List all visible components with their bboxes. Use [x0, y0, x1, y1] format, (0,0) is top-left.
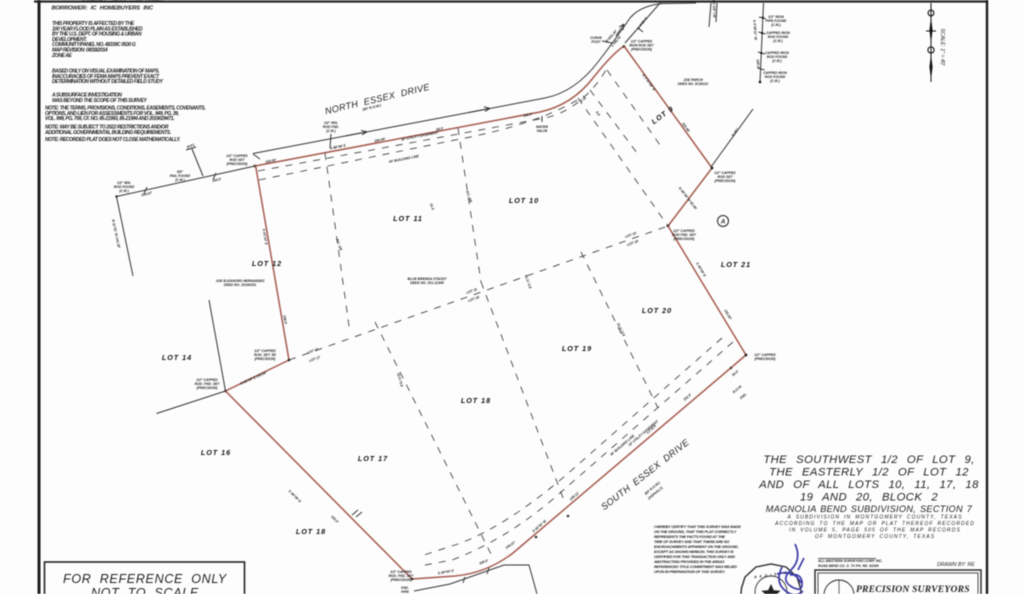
svg-text:(C.M.): (C.M.)	[770, 79, 780, 83]
svg-text:ADDITIONAL GOVERNMENTAL BUILDI: ADDITIONAL GOVERNMENTAL BUILDING REQUIRE…	[44, 130, 171, 136]
svg-text:SOUTH ESSEX DRIVE: SOUTH ESSEX DRIVE	[599, 437, 691, 512]
svg-text:144.07': 144.07'	[505, 540, 517, 550]
svg-text:206.67': 206.67'	[140, 191, 153, 198]
svg-text:152.5': 152.5'	[683, 393, 693, 402]
svg-text:51.5 / 5.8: 51.5 / 5.8	[524, 274, 533, 289]
svg-text:REFERENCED TITLE COMMITMENT WA: REFERENCED TITLE COMMITMENT WAS RELIED	[654, 565, 737, 569]
svg-text:BORROWER: IC HOMEBUYERS INC: BORROWER: IC HOMEBUYERS INC	[52, 5, 154, 11]
svg-text:LOT 17: LOT 17	[309, 355, 322, 363]
svg-text:DRAWN BY: RE: DRAWN BY: RE	[937, 562, 975, 568]
svg-text:VOL. 999, PG. 708, CF. NO. 85-: VOL. 999, PG. 708, CF. NO. 85-21993, 85-…	[45, 116, 174, 122]
svg-text:S 4°38'11" W: S 4°38'11" W	[752, 20, 757, 41]
svg-text:LOT 10: LOT 10	[509, 196, 539, 205]
svg-text:LOT 17: LOT 17	[358, 454, 388, 463]
svg-text:THE SOUTHWEST 1/2 OF LOT 9,: THE SOUTHWEST 1/2 OF LOT 9,	[763, 454, 974, 466]
svg-text:S 89°54' E: S 89°54' E	[438, 569, 455, 576]
svg-text:ZONE AE: ZONE AE	[51, 53, 72, 59]
svg-text:(PRECISION): (PRECISION)	[715, 179, 737, 183]
svg-text:ROAD BEND CO. S. TX PH. RD. 6/: ROAD BEND CO. S. TX PH. RD. 6/2/64	[818, 564, 879, 568]
svg-text:(PRECISION): (PRECISION)	[674, 237, 696, 241]
svg-text:ACCORDING TO THE MAP OR PLAT T: ACCORDING TO THE MAP OR PLAT THEREOF REC…	[774, 521, 975, 527]
svg-text:FOR REFERENCE ONLY: FOR REFERENCE ONLY	[63, 572, 228, 586]
svg-text:I HEREBY CERTIFY THAT THIS SUR: I HEREBY CERTIFY THAT THIS SURVEY WAS MA…	[654, 525, 741, 529]
svg-text:THE EASTERLY 1/2 OF LOT 12: THE EASTERLY 1/2 OF LOT 12	[769, 467, 969, 479]
svg-text:N 4°38' E: N 4°38' E	[636, 16, 648, 30]
svg-text:NOT TO SCALE: NOT TO SCALE	[91, 586, 199, 594]
svg-text:32.5 / 5.8: 32.5 / 5.8	[396, 372, 404, 387]
svg-text:UPON IN PREPARATION OF THIS SU: UPON IN PREPARATION OF THIS SURVEY.	[654, 570, 725, 574]
svg-text:LOT 21: LOT 21	[721, 260, 751, 269]
svg-text:A: A	[720, 220, 725, 226]
svg-text:(C.M.): (C.M.)	[175, 178, 185, 182]
svg-text:CERTIFIED FOR THIS TRANSACTION: CERTIFIED FOR THIS TRANSACTION ONLY AND	[654, 555, 735, 559]
svg-text:ALL-WESTERN SURVEYING CORP. IN: ALL-WESTERN SURVEYING CORP. INC.	[817, 559, 883, 563]
svg-text:FND 5/8" I.R.: FND 5/8" I.R.	[712, 0, 717, 18]
svg-text:(PRECISION): (PRECISION)	[755, 357, 777, 361]
svg-text:40' BUILDING LINE: 40' BUILDING LINE	[387, 154, 419, 164]
svg-text:50.0': 50.0'	[731, 369, 739, 377]
svg-text:LOT 12: LOT 12	[252, 259, 282, 268]
svg-text:16' UTILITY EASEMENT: 16' UTILITY EASEMENT	[401, 130, 440, 141]
svg-text:19 AND 20, BLOCK 2: 19 AND 20, BLOCK 2	[800, 492, 938, 504]
svg-text:(C.M.): (C.M.)	[326, 129, 336, 133]
svg-text:PIPE: PIPE	[401, 590, 409, 594]
svg-text:R.O.W.: R.O.W.	[732, 384, 743, 394]
svg-text:150.0': 150.0'	[479, 559, 489, 566]
svg-text:(PRECISION): (PRECISION)	[255, 357, 277, 361]
svg-text:TIME OF SURVEY AND THAT THERE: TIME OF SURVEY AND THAT THERE ARE NO	[654, 540, 729, 544]
svg-text:SCALE: 1" = 40': SCALE: 1" = 40'	[939, 28, 945, 66]
svg-text:WAS BEYOND THE SCOPE OF THIS S: WAS BEYOND THE SCOPE OF THIS SURVEY	[52, 98, 148, 104]
svg-text:VALVE: VALVE	[537, 129, 549, 133]
svg-text:DETERMINATION WITHOUT DETAILED: DETERMINATION WITHOUT DETAILED FIELD STU…	[52, 79, 164, 85]
svg-text:LOT 18: LOT 18	[296, 527, 326, 536]
svg-text:150.0': 150.0'	[212, 177, 222, 183]
svg-text:EXCEPT AS SHOWN HEREON. THIS S: EXCEPT AS SHOWN HEREON. THIS SURVEY IS	[654, 550, 734, 554]
svg-text:(PRECISION): (PRECISION)	[631, 48, 653, 52]
svg-text:IN VOLUME 5, PAGE 505 OF THE M: IN VOLUME 5, PAGE 505 OF THE MAP RECORDS	[789, 528, 961, 534]
svg-text:LOT 9: LOT 9	[650, 104, 676, 126]
svg-text:PRECISION SURVEYORS: PRECISION SURVEYORS	[856, 584, 970, 594]
svg-text:LOT 19: LOT 19	[562, 344, 592, 353]
svg-text:5.8: 5.8	[595, 110, 601, 116]
svg-text:(PRECISION): (PRECISION)	[227, 162, 249, 166]
svg-text:LOT 16: LOT 16	[201, 448, 231, 457]
svg-text:LOT 14: LOT 14	[162, 353, 192, 362]
svg-text:(C.M.): (C.M.)	[773, 39, 783, 43]
svg-text:180.1': 180.1'	[756, 59, 761, 69]
svg-text:(C.M.): (C.M.)	[771, 23, 781, 27]
svg-text:LOT 18: LOT 18	[468, 295, 480, 303]
svg-text:P.C. 5/8: P.C. 5/8	[335, 238, 343, 251]
svg-text:A SUBDIVISION IN MONTGOMERY CO: A SUBDIVISION IN MONTGOMERY COUNTY, TEXA…	[786, 515, 962, 521]
svg-text:LOT 20: LOT 20	[642, 306, 672, 315]
svg-text:S 44°09' E: S 44°09' E	[288, 489, 303, 504]
svg-text:POST: POST	[591, 40, 601, 44]
svg-text:LOT 12: LOT 12	[307, 347, 319, 355]
svg-text:150.0': 150.0'	[330, 515, 340, 525]
svg-text:OF MONTGOMERY COUNTY, TEXAS: OF MONTGOMERY COUNTY, TEXAS	[815, 534, 935, 540]
svg-text:160.0': 160.0'	[523, 112, 533, 118]
svg-text:C.B.: C.B.	[579, 96, 587, 103]
svg-text:(PRECISION): (PRECISION)	[197, 386, 219, 390]
svg-text:NORTH ESSEX DRIVE: NORTH ESSEX DRIVE	[324, 82, 431, 117]
svg-text:51.5 / 5.8: 51.5 / 5.8	[616, 322, 626, 337]
svg-text:REPRESENTS THE FACTS FOUND AT: REPRESENTS THE FACTS FOUND AT THE	[654, 535, 726, 539]
svg-text:SOMEWELL TEXAS 77346 HARRIS: SOMEWELL TEXAS 77346 HARRIS	[81, 0, 164, 4]
svg-text:NOTE: RECORDED PLAT DOES NOT C: NOTE: RECORDED PLAT DOES NOT CLOSE MATHE…	[45, 137, 181, 143]
svg-text:DEED NO. 8136121: DEED NO. 8136121	[678, 82, 709, 86]
svg-text:N 89°59' E 150.00': N 89°59' E 150.00'	[240, 370, 268, 385]
svg-text:(C.M.): (C.M.)	[772, 59, 782, 63]
svg-text:AND OF ALL LOTS 10, 11, 17, 18: AND OF ALL LOTS 10, 11, 17, 18	[758, 479, 979, 491]
svg-text:FND.: FND.	[739, 392, 748, 400]
svg-text:N 1°57'06" E: N 1°57'06" E	[641, 73, 656, 92]
svg-text:ON THE GROUND, THAT THIS PLAT: ON THE GROUND, THAT THIS PLAT CORRECTLY	[654, 530, 737, 534]
svg-text:LOT 19: LOT 19	[627, 239, 639, 247]
svg-text:P.C. 5/8: P.C. 5/8	[465, 190, 473, 203]
svg-text:N 11°51' W 141.38': N 11°51' W 141.38'	[111, 219, 121, 248]
svg-text:(PRECISION): (PRECISION)	[391, 578, 413, 582]
svg-text:LOT 11: LOT 11	[393, 214, 423, 223]
svg-text:ABSTRACTING PROVIDED IN THE AR: ABSTRACTING PROVIDED IN THE AREAS	[653, 560, 725, 564]
svg-text:ENCROACHMENTS APPARENT ON THE: ENCROACHMENTS APPARENT ON THE GROUND,	[654, 545, 739, 549]
svg-text:MAGNOLIA BEND SUBDIVISION, SEC: MAGNOLIA BEND SUBDIVISION, SECTION 7	[766, 504, 973, 514]
svg-text:DEED NO. 20190151: DEED NO. 20190151	[224, 283, 257, 287]
svg-text:LOT 18: LOT 18	[461, 396, 491, 405]
svg-text:S 45°08' E: S 45°08' E	[695, 262, 707, 279]
svg-text:DEED NO. 201-12345: DEED NO. 201-12345	[410, 281, 444, 285]
svg-text:51.5: 51.5	[429, 203, 435, 211]
svg-text:(C.M.): (C.M.)	[119, 189, 129, 193]
